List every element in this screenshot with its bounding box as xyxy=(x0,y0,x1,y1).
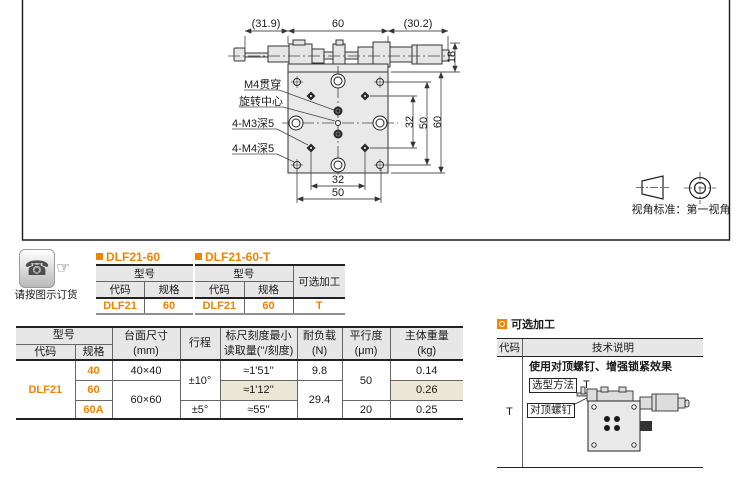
spec-value: 40 xyxy=(75,360,112,380)
model-header: 型号 xyxy=(195,265,293,282)
dim-60-top: 60 xyxy=(332,18,344,30)
orange-square-bullet-icon xyxy=(96,253,103,260)
model-header: 型号 xyxy=(16,327,112,344)
table-size-header: 台面尺寸 (mm) xyxy=(112,327,180,360)
parallel-line2: (μm) xyxy=(343,344,390,359)
travel-value: ±10° xyxy=(180,360,220,400)
dim-18: 18 xyxy=(446,51,458,63)
technical-drawing: M4贯穿 旋转中心 4-M3深5 4-M4深5 (31.9) xyxy=(0,0,748,245)
phone-order-button: ☎ xyxy=(19,249,55,288)
table-size-line2: (mm) xyxy=(113,344,180,359)
weight-header: 主体重量 (kg) xyxy=(390,327,463,360)
spec-row-60: 60 60×60 ≈1'12'' 29.4 0.26 xyxy=(16,380,463,400)
model-header: 型号 xyxy=(96,265,193,282)
weight-line2: (kg) xyxy=(391,344,464,359)
label-m4-deep: 4-M4深5 xyxy=(232,142,274,155)
option-value: T xyxy=(293,298,345,314)
scale-reading-header: 标尺刻度最小 读取量(''/刻度) xyxy=(220,327,297,360)
size-value: 40×40 xyxy=(112,360,180,380)
dim-v60: 60 xyxy=(432,116,444,128)
order-note: 请按图示订货 xyxy=(2,287,90,302)
code-value: DLF21 xyxy=(16,360,75,419)
dim-v50: 50 xyxy=(418,117,430,129)
tech-description-cell: 使用对顶螺钉、增强锁紧效果 选型方法 T 对顶螺钉 xyxy=(523,357,703,467)
size-value: 60×60 xyxy=(112,380,180,419)
orange-circle-badge-icon xyxy=(497,319,507,329)
order-table-title: DLF21-60-T xyxy=(195,250,345,263)
spec-header: 规格 xyxy=(244,282,293,299)
load-value: 9.8 xyxy=(297,360,342,380)
parallelism-header: 平行度 (μm) xyxy=(342,327,390,360)
table-size-line1: 台面尺寸 xyxy=(113,329,180,344)
load-header: 耐负载 (N) xyxy=(297,327,342,360)
parallelism-value: 50 xyxy=(342,360,390,400)
code-value: DLF21 xyxy=(96,298,145,314)
order-table-title: DLF21-60 xyxy=(96,250,193,263)
dim-30-2: (30.2) xyxy=(404,18,433,30)
spec-value: 60 xyxy=(75,380,112,400)
scale-value: ≈1'12'' xyxy=(220,380,297,400)
spec-header: 规格 xyxy=(145,282,194,299)
load-line2: (N) xyxy=(298,344,342,359)
spec-value: 60A xyxy=(75,400,112,419)
travel-value: ±5° xyxy=(180,400,220,419)
code-header: 代码 xyxy=(96,282,145,299)
label-m4-through: M4贯穿 xyxy=(244,77,281,91)
label-rotation-center: 旋转中心 xyxy=(239,94,283,108)
weight-value: 0.26 xyxy=(390,380,463,400)
scale-value: ≈55'' xyxy=(220,400,297,419)
orange-square-bullet-icon xyxy=(195,253,202,260)
optional-machining-header: 可选加工 xyxy=(497,316,555,332)
set-screw-label: 对顶螺钉 xyxy=(527,403,575,418)
model-number-title: DLF21-60-T xyxy=(205,251,270,263)
code-header: 代码 xyxy=(497,339,523,356)
scale-line1: 标尺刻度最小 xyxy=(221,329,297,344)
tech-description-title: 使用对顶螺钉、增强锁紧效果 xyxy=(529,361,699,374)
code-header: 代码 xyxy=(16,344,75,360)
model-number-title: DLF21-60 xyxy=(106,251,160,263)
code-value: DLF21 xyxy=(195,298,244,314)
load-line1: 耐负载 xyxy=(298,329,342,344)
set-screw-diagram xyxy=(523,385,703,465)
travel-header: 行程 xyxy=(180,327,220,360)
dim-v32: 32 xyxy=(404,116,416,128)
scale-line2: 读取量(''/刻度) xyxy=(221,344,297,359)
spec-value: 60 xyxy=(145,298,194,314)
weight-value: 0.14 xyxy=(390,360,463,380)
optional-machining-table: 代码 技术说明 T 使用对顶螺钉、增强锁紧效果 选型方法 T 对顶螺钉 xyxy=(497,338,703,468)
view-standard-label: 视角标准：第一视角 xyxy=(632,202,731,216)
dim-h50: 50 xyxy=(332,187,344,199)
tech-description-header: 技术说明 xyxy=(523,339,703,356)
phone-icon: ☎ xyxy=(25,259,50,279)
rotation-center-hole xyxy=(336,121,341,126)
dim-31-9: (31.9) xyxy=(252,18,281,30)
spec-header: 规格 xyxy=(75,344,112,360)
spec-value: 60 xyxy=(244,298,293,314)
scale-value: ≈1'51'' xyxy=(220,360,297,380)
order-table-dlf21-60: DLF21-60 型号 代码 规格 DLF21 60 xyxy=(96,250,193,315)
label-m3-deep: 4-M3深5 xyxy=(232,117,274,130)
spec-row-40: DLF21 40 40×40 ±10° ≈1'51'' 9.8 50 0.14 xyxy=(16,360,463,380)
spec-row-60a: 60A ±5° ≈55'' 20 0.25 xyxy=(16,400,463,419)
parallelism-value: 20 xyxy=(342,400,390,419)
order-table-dlf21-60-t: DLF21-60-T 型号 可选加工 代码 规格 DLF21 60 T xyxy=(195,250,345,315)
option-header: 可选加工 xyxy=(293,265,345,298)
pointing-hand-icon: ☞ xyxy=(56,258,70,278)
weight-line1: 主体重量 xyxy=(391,329,464,344)
optional-machining-title: 可选加工 xyxy=(511,316,555,332)
code-header: 代码 xyxy=(195,282,244,299)
weight-value: 0.25 xyxy=(390,400,463,419)
load-value: 29.4 xyxy=(297,380,342,419)
first-angle-symbol xyxy=(636,172,716,204)
spec-table: 型号 台面尺寸 (mm) 行程 标尺刻度最小 读取量(''/刻度) 耐负载 (N… xyxy=(16,326,463,420)
option-code-value: T xyxy=(497,357,523,467)
parallel-line1: 平行度 xyxy=(343,329,390,344)
dim-h32: 32 xyxy=(332,174,344,186)
catalog-page: M4贯穿 旋转中心 4-M3深5 4-M4深5 (31.9) xyxy=(0,0,748,490)
